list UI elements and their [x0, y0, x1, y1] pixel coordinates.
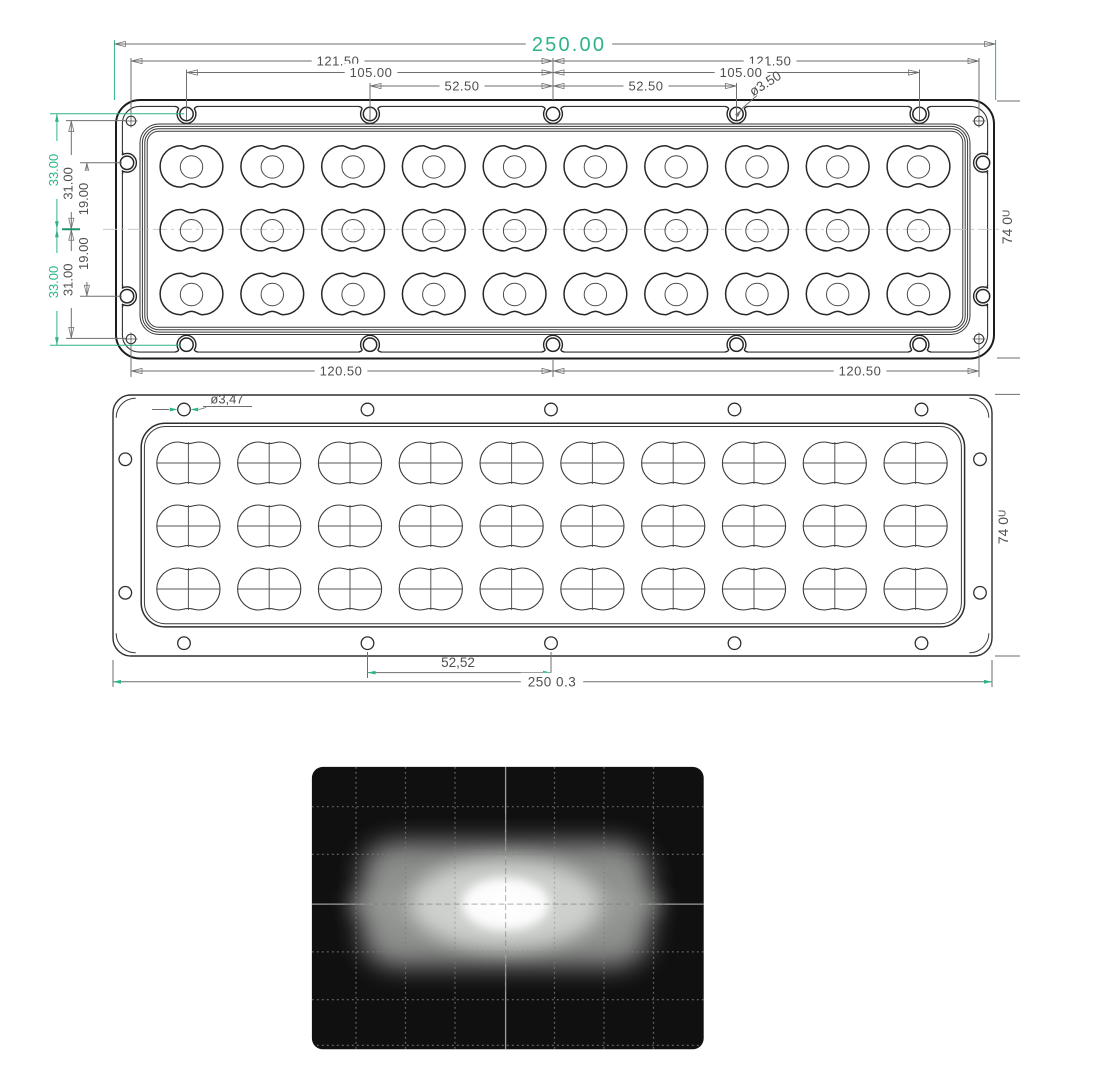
svg-text:33.00: 33.00	[46, 154, 61, 187]
svg-text:19.00: 19.00	[76, 237, 91, 270]
svg-text:ø3,47: ø3,47	[210, 392, 243, 407]
svg-text:52,52: 52,52	[441, 655, 475, 670]
svg-text:52.50: 52.50	[444, 79, 479, 94]
svg-text:52.50: 52.50	[628, 79, 663, 94]
svg-text:105.00: 105.00	[720, 65, 763, 80]
svg-text:31.00: 31.00	[61, 264, 76, 297]
svg-text:31.00: 31.00	[61, 167, 76, 200]
svg-text:120.50: 120.50	[320, 364, 363, 379]
svg-text:19.00: 19.00	[76, 183, 91, 216]
svg-text:120.50: 120.50	[839, 364, 882, 379]
svg-text:33.00: 33.00	[46, 266, 61, 299]
svg-text:105.00: 105.00	[350, 65, 393, 80]
svg-text:250 0.3: 250 0.3	[528, 675, 577, 690]
svg-text:250.00: 250.00	[532, 34, 606, 56]
